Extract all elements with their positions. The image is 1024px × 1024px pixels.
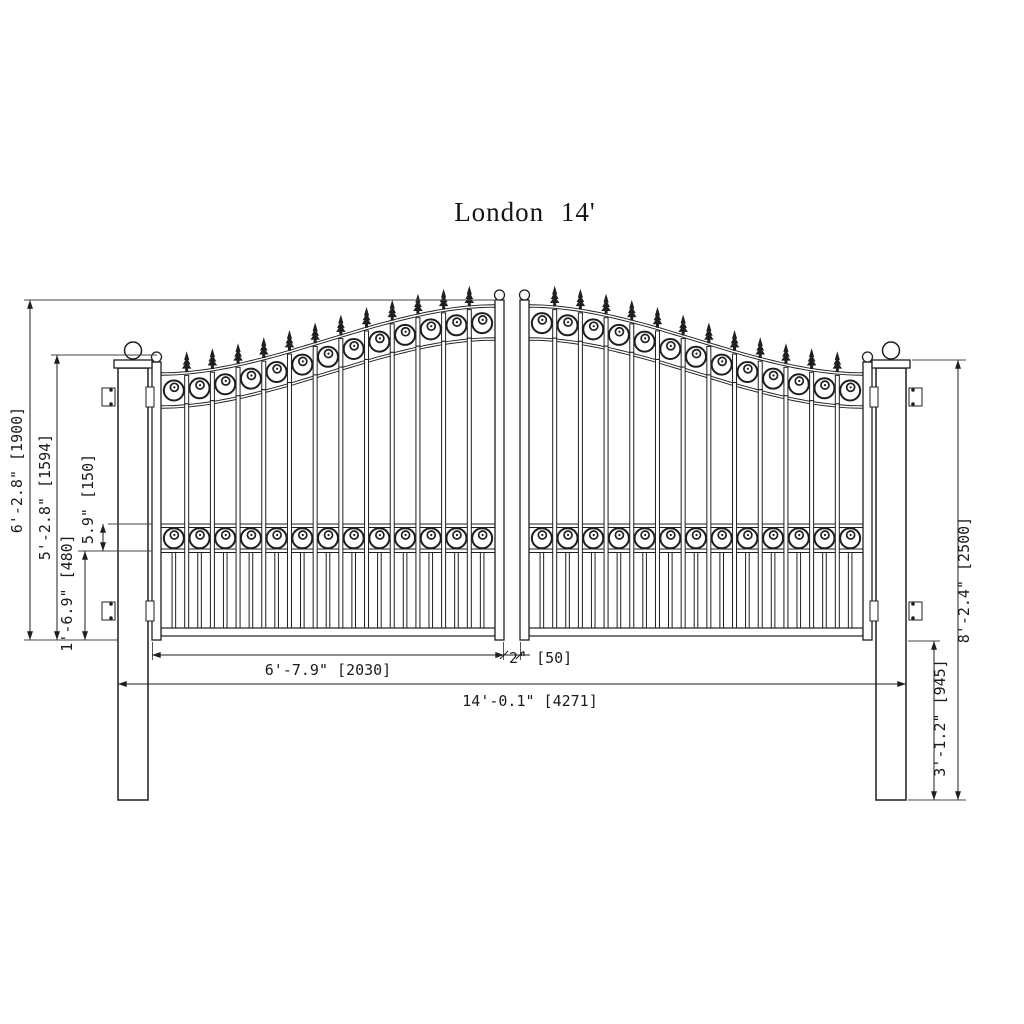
dim-total-width-label: 14'-0.1" [4271] <box>462 692 597 710</box>
dim-total-height-label: 6'-2.8" [1900] <box>8 407 26 533</box>
gate-diagram: 6'-2.8" [1900] 5'-2.8" [1594] 1'-6.9" [4… <box>0 0 1024 1024</box>
dim-band-height-label: 5.9" [150] <box>79 454 97 544</box>
dim-leaf-width-label: 6'-7.9" [2030] <box>265 661 391 679</box>
drawing-page: 6'-2.8" [1900] 5'-2.8" [1594] 1'-6.9" [4… <box>0 0 1024 1024</box>
dim-post-lower-label: 3'-1.2" [945] <box>931 659 949 776</box>
page-title: London 14' <box>454 197 596 227</box>
gate-posts <box>114 342 910 800</box>
dim-leaf-height-label: 5'-2.8" [1594] <box>36 434 54 560</box>
dim-post-height-label: 8'-2.4" [2500] <box>955 517 973 643</box>
dim-lower-section-label: 1'-6.9" [480] <box>58 534 76 651</box>
dim-gap-label: 2" [50] <box>509 649 572 667</box>
gate-drawing-geometry <box>24 287 966 800</box>
gate-leaves <box>152 287 873 640</box>
